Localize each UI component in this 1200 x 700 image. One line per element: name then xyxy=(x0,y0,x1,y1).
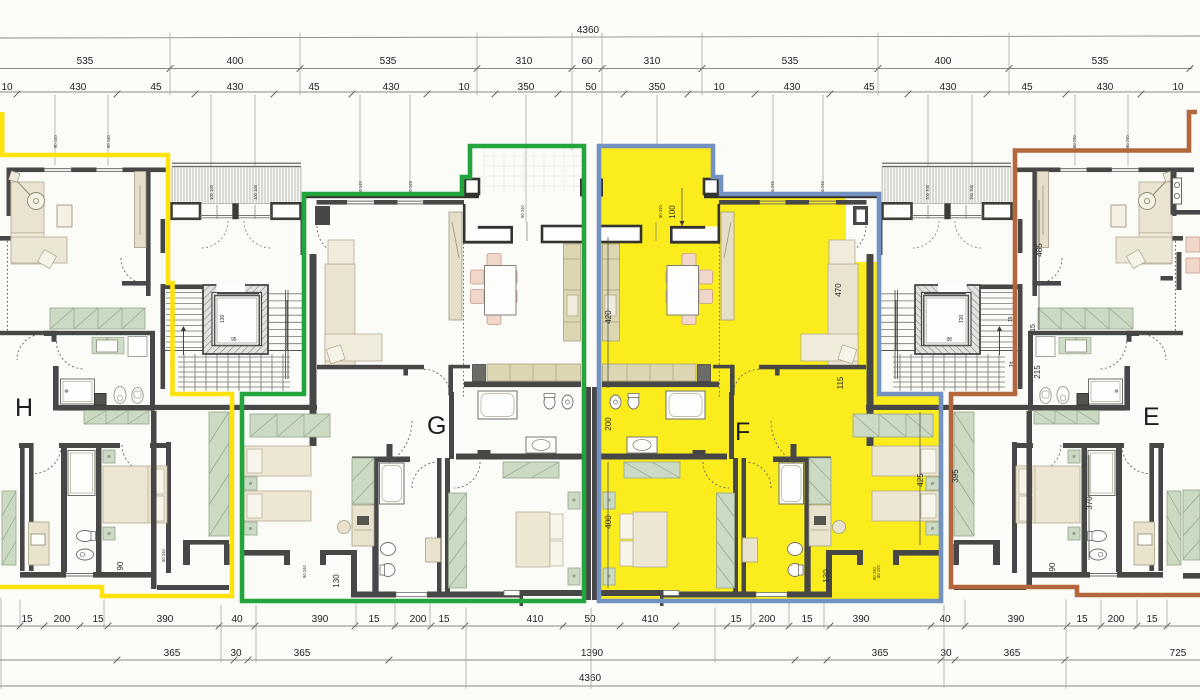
svg-text:200: 200 xyxy=(54,614,71,625)
svg-text:470: 470 xyxy=(834,283,843,297)
svg-text:15: 15 xyxy=(438,614,450,625)
svg-text:90: 90 xyxy=(116,561,125,570)
svg-text:4360: 4360 xyxy=(579,673,602,684)
svg-text:390: 390 xyxy=(312,614,329,625)
svg-text:4360: 4360 xyxy=(577,25,600,36)
svg-text:45: 45 xyxy=(308,82,320,93)
svg-text:350: 350 xyxy=(649,82,666,93)
svg-text:E: E xyxy=(1143,403,1160,431)
svg-text:15: 15 xyxy=(1030,324,1037,332)
svg-text:535: 535 xyxy=(1092,56,1109,67)
svg-text:430: 430 xyxy=(940,82,957,93)
svg-text:15: 15 xyxy=(21,614,33,625)
svg-text:1390: 1390 xyxy=(581,648,604,659)
svg-text:390: 390 xyxy=(853,614,870,625)
svg-text:50: 50 xyxy=(584,614,596,625)
svg-text:15: 15 xyxy=(92,614,104,625)
svg-text:485: 485 xyxy=(1035,243,1044,257)
svg-text:365: 365 xyxy=(1004,648,1021,659)
svg-text:215: 215 xyxy=(1033,365,1042,379)
svg-text:390: 390 xyxy=(157,614,174,625)
svg-text:200: 200 xyxy=(410,614,427,625)
svg-text:395: 395 xyxy=(951,469,960,483)
svg-text:50: 50 xyxy=(585,82,597,93)
svg-text:400: 400 xyxy=(227,56,244,67)
svg-text:G: G xyxy=(427,412,446,440)
svg-text:60: 60 xyxy=(581,56,593,67)
svg-text:90 240: 90 240 xyxy=(872,567,877,580)
svg-text:200: 200 xyxy=(1108,614,1125,625)
svg-text:90 240: 90 240 xyxy=(161,549,166,562)
svg-text:40: 40 xyxy=(231,614,243,625)
svg-text:410: 410 xyxy=(527,614,544,625)
svg-text:45: 45 xyxy=(1021,82,1033,93)
svg-text:10: 10 xyxy=(713,82,725,93)
svg-text:30: 30 xyxy=(940,648,952,659)
svg-text:725: 725 xyxy=(1170,648,1187,659)
svg-text:400: 400 xyxy=(935,56,952,67)
svg-text:420: 420 xyxy=(604,310,613,324)
svg-text:45: 45 xyxy=(150,82,162,93)
svg-text:30: 30 xyxy=(230,648,242,659)
svg-text:535: 535 xyxy=(380,56,397,67)
svg-text:10: 10 xyxy=(1172,82,1184,93)
svg-text:365: 365 xyxy=(872,648,889,659)
svg-text:390: 390 xyxy=(1008,614,1025,625)
svg-text:425: 425 xyxy=(916,473,925,487)
svg-text:370: 370 xyxy=(1085,496,1094,510)
svg-text:15: 15 xyxy=(801,614,813,625)
svg-text:115: 115 xyxy=(836,376,845,389)
svg-text:15: 15 xyxy=(730,614,742,625)
svg-text:200: 200 xyxy=(759,614,776,625)
svg-text:H: H xyxy=(15,394,33,422)
svg-text:130: 130 xyxy=(822,569,831,583)
svg-text:535: 535 xyxy=(782,56,799,67)
svg-text:45: 45 xyxy=(863,82,875,93)
svg-text:10: 10 xyxy=(458,82,470,93)
svg-text:15: 15 xyxy=(1076,614,1088,625)
svg-text:365: 365 xyxy=(294,648,311,659)
svg-text:400: 400 xyxy=(604,515,613,529)
svg-text:430: 430 xyxy=(70,82,87,93)
svg-text:430: 430 xyxy=(227,82,244,93)
svg-text:430: 430 xyxy=(784,82,801,93)
svg-text:90: 90 xyxy=(1048,562,1057,571)
svg-text:310: 310 xyxy=(516,56,533,67)
svg-text:410: 410 xyxy=(642,614,659,625)
svg-text:350: 350 xyxy=(518,82,535,93)
svg-text:F: F xyxy=(735,418,750,446)
svg-text:535: 535 xyxy=(77,56,94,67)
svg-text:15: 15 xyxy=(368,614,380,625)
svg-text:100: 100 xyxy=(668,205,677,219)
svg-text:200: 200 xyxy=(604,417,613,431)
svg-text:40: 40 xyxy=(939,614,951,625)
svg-text:310: 310 xyxy=(644,56,661,67)
svg-text:365: 365 xyxy=(164,648,181,659)
svg-text:15: 15 xyxy=(1146,614,1158,625)
svg-text:10: 10 xyxy=(1,82,13,93)
svg-text:430: 430 xyxy=(383,82,400,93)
svg-text:130: 130 xyxy=(332,574,341,588)
svg-text:430: 430 xyxy=(1097,82,1114,93)
